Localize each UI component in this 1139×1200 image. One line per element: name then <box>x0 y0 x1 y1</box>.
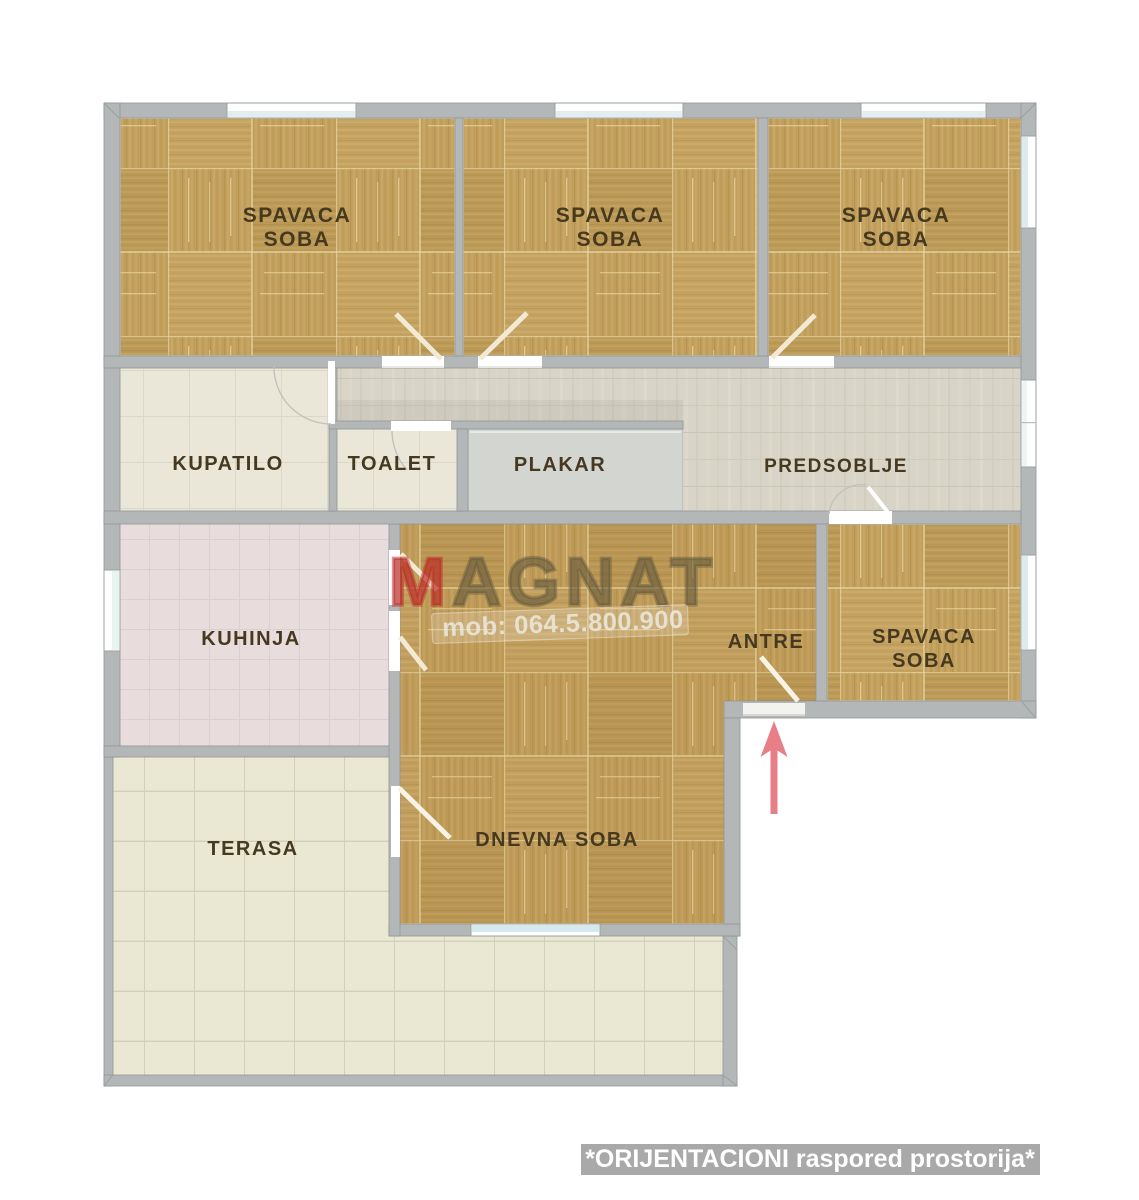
svg-text:TOALET: TOALET <box>348 453 437 475</box>
svg-text:KUHINJA: KUHINJA <box>201 628 300 650</box>
svg-text:SOBA: SOBA <box>577 228 644 251</box>
svg-text:TERASA: TERASA <box>207 838 298 860</box>
svg-text:*ORIJENTACIONI raspored prosto: *ORIJENTACIONI raspored prostorija* <box>585 1145 1035 1173</box>
svg-text:SOBA: SOBA <box>264 228 331 251</box>
svg-text:KUPATILO: KUPATILO <box>172 453 283 475</box>
svg-text:M: M <box>389 544 446 620</box>
svg-text:SPAVACA: SPAVACA <box>243 204 352 227</box>
svg-text:PLAKAR: PLAKAR <box>514 454 606 476</box>
svg-text:SPAVACA: SPAVACA <box>842 204 951 227</box>
svg-text:SPAVACA: SPAVACA <box>872 626 976 648</box>
svg-text:SOBA: SOBA <box>892 650 956 672</box>
svg-text:ANTRE: ANTRE <box>728 631 804 653</box>
svg-text:PREDSOBLJE: PREDSOBLJE <box>764 456 908 477</box>
svg-text:SPAVACA: SPAVACA <box>556 204 665 227</box>
svg-text:DNEVNA SOBA: DNEVNA SOBA <box>475 829 639 851</box>
svg-text:SOBA: SOBA <box>863 228 930 251</box>
